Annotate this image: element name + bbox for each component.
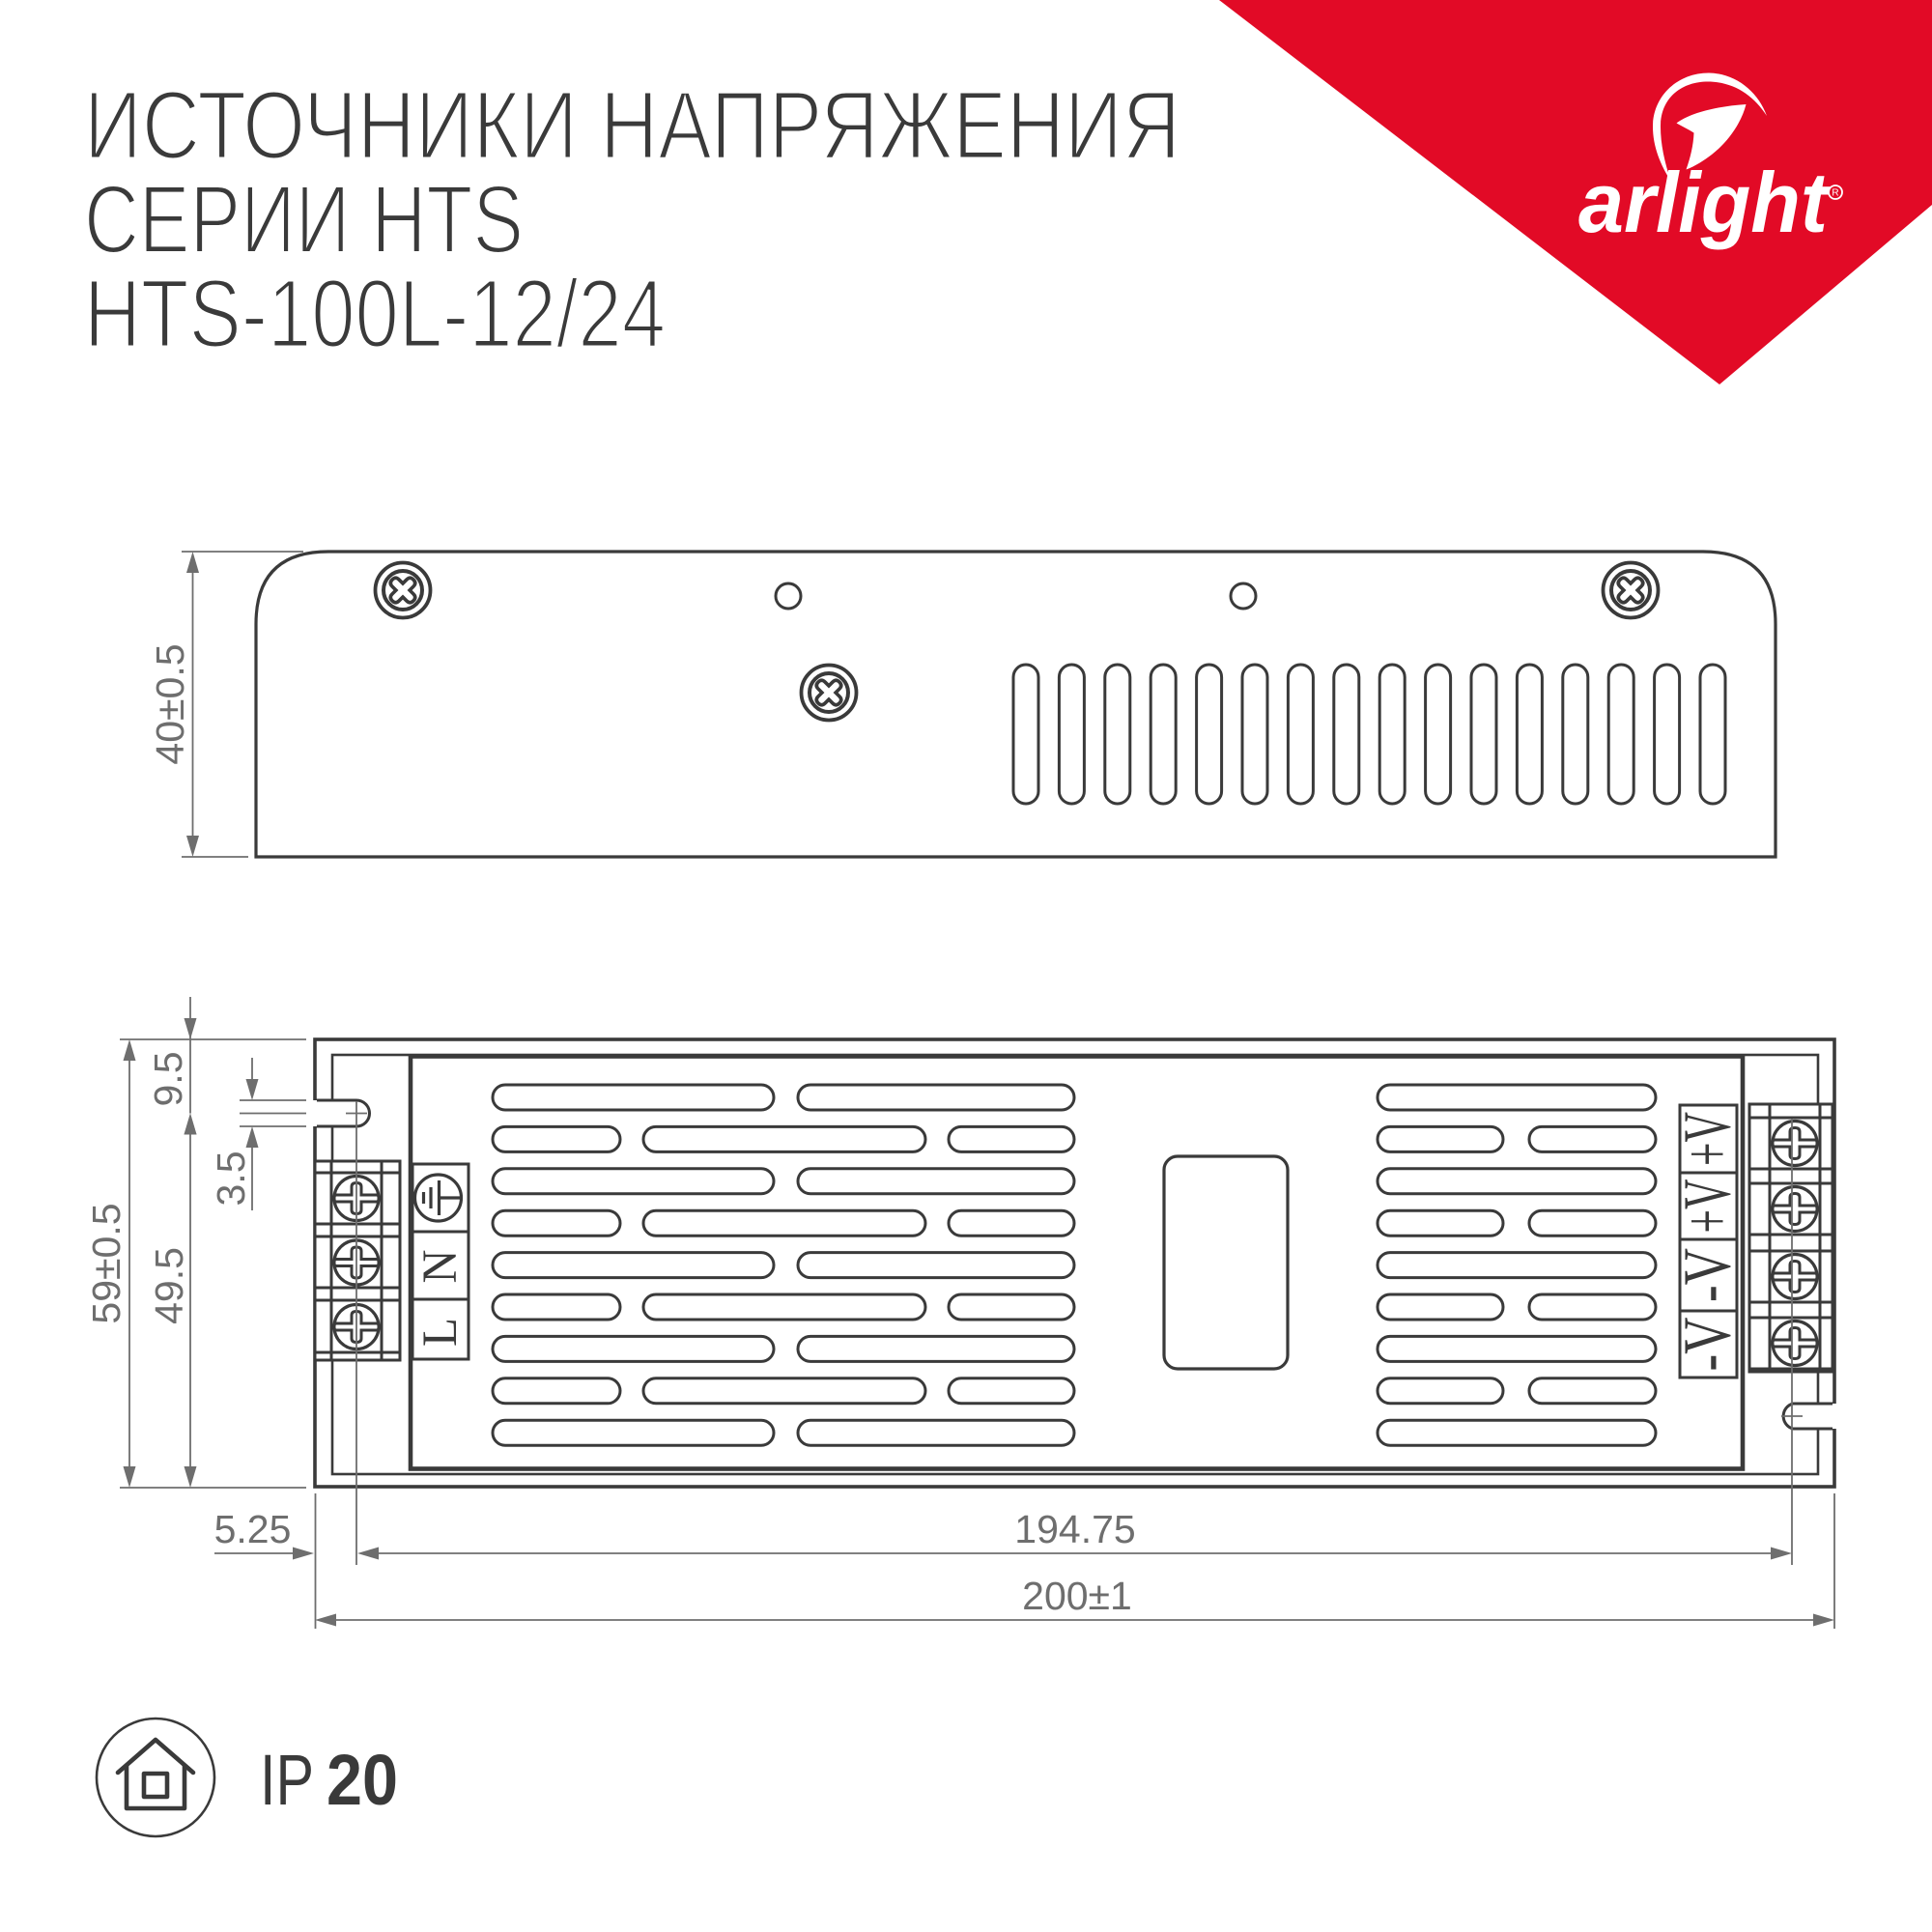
- svg-text:HTS-100L-12/24: HTS-100L-12/24: [84, 260, 666, 368]
- svg-text:200±1: 200±1: [1022, 1574, 1132, 1618]
- svg-text:-V: -V: [1671, 1248, 1746, 1302]
- svg-text:+V: +V: [1671, 1179, 1746, 1234]
- svg-text:+V: +V: [1671, 1112, 1746, 1166]
- svg-text:20: 20: [327, 1740, 398, 1820]
- svg-text:40±0.5: 40±0.5: [148, 643, 192, 764]
- svg-text:194.75: 194.75: [1014, 1507, 1135, 1551]
- svg-text:49.5: 49.5: [147, 1247, 191, 1324]
- svg-text:3.5: 3.5: [209, 1151, 253, 1207]
- svg-text:R: R: [1832, 188, 1838, 199]
- svg-text:СЕРИИ HTS: СЕРИИ HTS: [84, 166, 524, 274]
- svg-text:N: N: [413, 1250, 468, 1284]
- svg-text:9.5: 9.5: [146, 1052, 190, 1107]
- svg-text:arlight: arlight: [1578, 155, 1832, 250]
- svg-text:ИСТОЧНИКИ НАПРЯЖЕНИЯ: ИСТОЧНИКИ НАПРЯЖЕНИЯ: [84, 71, 1180, 180]
- svg-text:59±0.5: 59±0.5: [84, 1203, 128, 1323]
- svg-text:-V: -V: [1671, 1318, 1746, 1372]
- svg-text:IP: IP: [260, 1740, 314, 1820]
- svg-text:L: L: [413, 1318, 468, 1347]
- svg-text:5.25: 5.25: [214, 1507, 292, 1551]
